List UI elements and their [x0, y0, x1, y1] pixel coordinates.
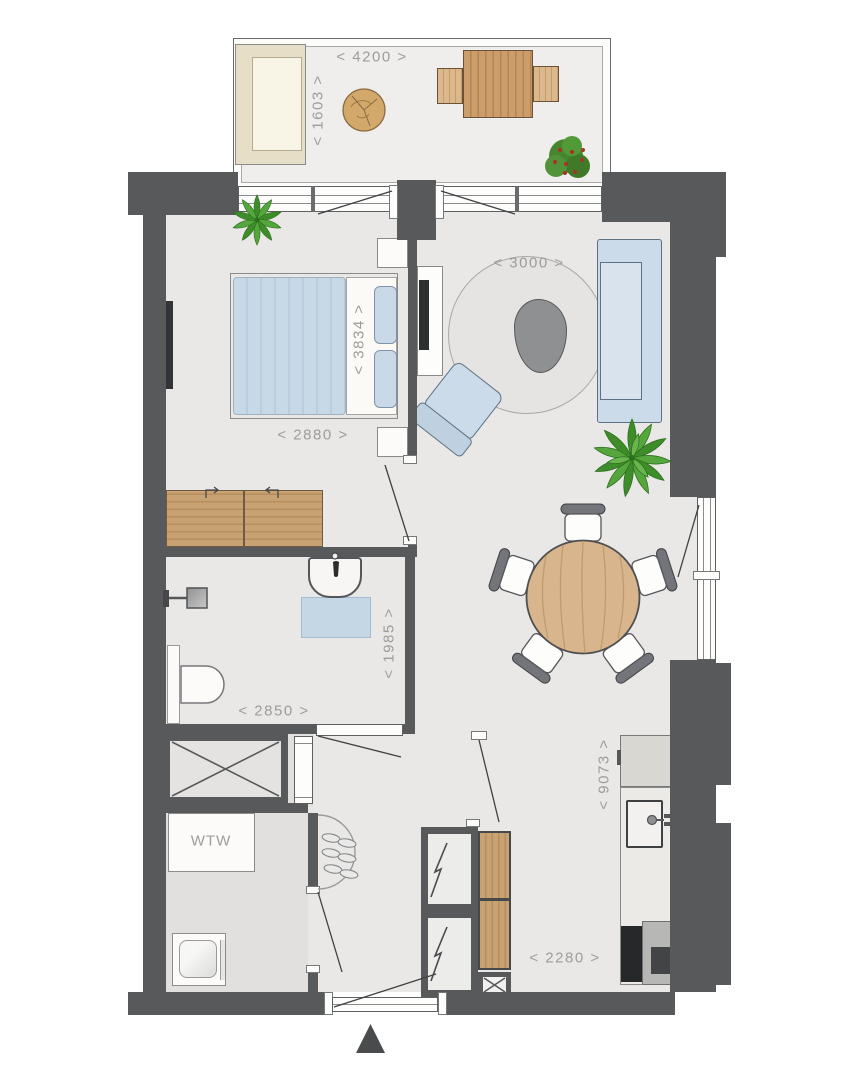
washing-machine-door — [179, 940, 217, 978]
nightstand-top — [377, 238, 408, 268]
washing-machine-panel — [220, 940, 225, 980]
terrace-window-band-left — [238, 186, 398, 212]
wall-hall-west-lower — [308, 971, 318, 992]
wall-bathroom-top — [166, 547, 415, 557]
window-mullion-2 — [515, 186, 519, 212]
wall-right-step — [670, 222, 726, 257]
wall-hall-west-upper — [308, 813, 318, 892]
bed-duvet — [233, 277, 346, 415]
nightstand-bottom — [377, 427, 408, 457]
electrical-shaft-1 — [421, 827, 478, 911]
hall-door-jamb-bottom — [466, 819, 480, 827]
electrical-shaft-2 — [421, 911, 478, 997]
wall-right-outer-strip-1 — [716, 663, 731, 785]
bed-pillow-bottom — [374, 350, 397, 408]
dim-terrace-depth: < 1603 > — [311, 74, 326, 145]
bath-mat — [301, 597, 371, 638]
dim-bathroom-width: < 2850 > — [238, 704, 309, 719]
outdoor-bench-right — [533, 66, 559, 102]
cooktop-black-panel — [621, 926, 642, 982]
dim-rug-diameter: < 3000 > — [493, 256, 564, 271]
bathroom-door-slab — [316, 724, 403, 736]
pillar-jamb-left — [389, 185, 398, 219]
utility-door-jamb-top — [306, 886, 320, 894]
wall-bottom-left-foot — [128, 992, 166, 1015]
utility-door-jamb-bottom — [306, 965, 320, 973]
bathroom-sink — [308, 557, 362, 598]
entrance-door-slab — [332, 997, 438, 1012]
kitchen-cabinet-handle — [617, 750, 621, 765]
wall-bottom-right — [443, 992, 675, 1015]
outdoor-dining-table — [463, 50, 533, 118]
kitchen-cabinet — [620, 735, 672, 787]
wardrobe-left — [166, 490, 244, 547]
storage-door-band — [294, 736, 313, 804]
wall-bathroom-bottom — [166, 724, 316, 734]
wall-right-upper — [670, 257, 716, 497]
wall-right-outer-strip-2 — [716, 823, 731, 985]
bedroom-door-jamb-top — [403, 455, 417, 464]
bed-pillow-top — [374, 286, 397, 344]
tall-wood-cabinet-divider — [478, 898, 511, 901]
wall-top-left-block — [128, 172, 238, 215]
tv-living-room — [419, 280, 429, 350]
shaft-x-box — [163, 734, 288, 804]
dim-bathroom-length: < 1985 > — [382, 607, 397, 678]
entrance-marker-triangle — [356, 1024, 385, 1053]
outdoor-bench-left — [437, 68, 463, 104]
cooktop-inner — [651, 947, 670, 974]
kitchen-sink — [626, 800, 663, 848]
sofa — [597, 239, 662, 423]
entrance-door-jamb-right — [438, 992, 447, 1015]
sofa-seat — [600, 262, 642, 400]
wall-bottom-left — [166, 992, 332, 1015]
washing-machine — [172, 933, 226, 986]
wall-bedroom-east — [408, 238, 417, 462]
dim-kitchen-width: < 2280 > — [529, 951, 600, 966]
right-window-divider — [693, 571, 720, 580]
wall-bathroom-east — [405, 557, 415, 734]
dim-bedroom-length: < 3834 > — [352, 303, 367, 374]
wall-bathroom-bottom-jamb — [403, 724, 415, 734]
dim-apartment-depth: < 9073 > — [597, 738, 612, 809]
dim-terrace-width: < 4200 > — [336, 50, 407, 65]
wall-left — [143, 215, 166, 992]
floor-plan: < 4200 > < 1603 > < 3834 > < 2880 > < 30… — [0, 0, 845, 1092]
hall-door-jamb-top — [471, 731, 487, 740]
dim-bedroom-width: < 2880 > — [277, 428, 348, 443]
wtw-label: WTW — [191, 834, 231, 849]
wall-storage-split — [166, 803, 308, 813]
wall-top-right-block — [602, 172, 726, 222]
toilet-cistern — [167, 645, 180, 724]
window-mullion-1 — [311, 186, 315, 212]
outdoor-lounge-sofa — [235, 44, 306, 165]
bedroom-door-jamb-bottom — [403, 536, 417, 545]
wardrobe-right — [244, 490, 323, 547]
pillar-jamb-right — [435, 185, 444, 219]
lounge-sofa-cushion — [252, 57, 302, 151]
wall-right-lower — [670, 660, 716, 992]
wall-top-pillar — [397, 180, 436, 240]
